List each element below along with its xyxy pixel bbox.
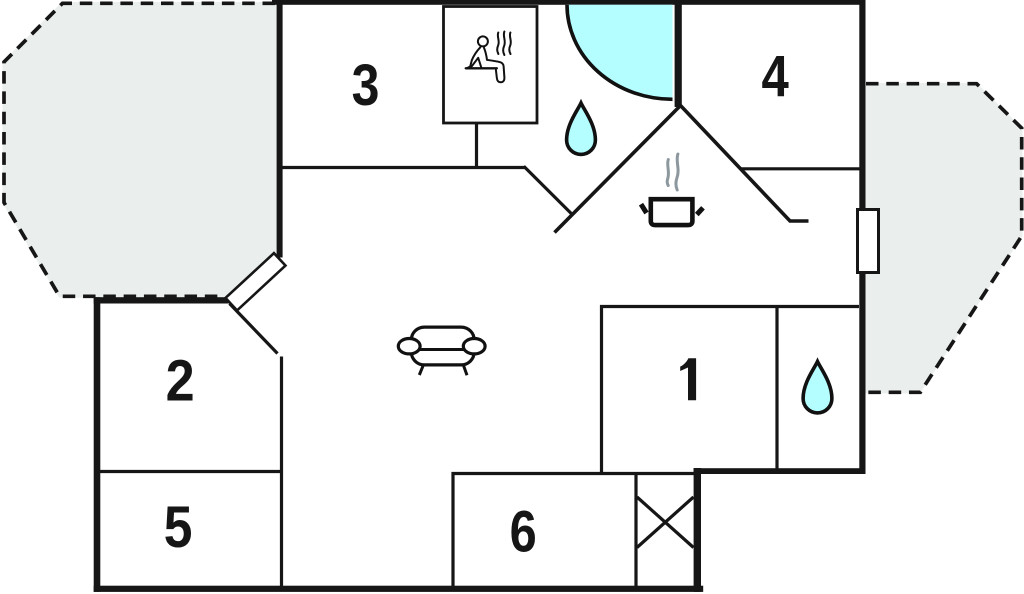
svg-text:4: 4	[761, 44, 788, 109]
svg-text:2: 2	[166, 348, 195, 413]
svg-text:6: 6	[510, 499, 537, 564]
svg-text:5: 5	[164, 495, 193, 560]
svg-text:3: 3	[352, 53, 380, 118]
